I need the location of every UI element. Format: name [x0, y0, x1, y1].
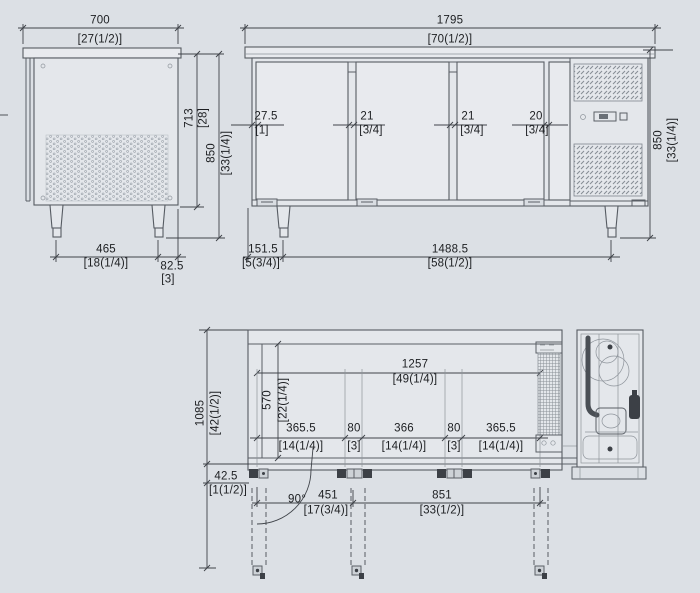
front-leg-offset-mm: 151.5 [248, 244, 278, 256]
side-worktop [23, 48, 181, 58]
side-dim-legs [50, 209, 186, 262]
plan-swing1-in: [17(3/4)] [304, 505, 349, 517]
plan-hinge-offset-in: [1(1/2)] [209, 485, 247, 497]
side-door-edge [26, 58, 30, 201]
front-door-1 [256, 62, 348, 200]
front-height-mm: 850 [653, 130, 665, 150]
plan-depth-in: [42(1/2)] [210, 391, 222, 436]
front-width-in: [70(1/2)] [428, 34, 473, 46]
front-leg-offset-in: [5(3/4)] [242, 258, 280, 270]
front-vent-grille-top [574, 64, 642, 101]
front-worktop [245, 47, 655, 58]
plan-machine-compartment [572, 330, 646, 479]
front-view [231, 24, 673, 262]
plan-hinge-offset-mm: 42.5 [214, 471, 237, 483]
side-dim-body-height [178, 51, 224, 210]
front-gap-mid1-in: [3/4] [359, 125, 382, 137]
front-vent-grille-bottom [574, 144, 642, 196]
plan-hinge-span-in: [49(1/4)] [393, 374, 438, 386]
plan-seg4-mm: 80 [447, 423, 460, 435]
front-height-in: [33(1/4)] [667, 118, 679, 163]
side-width-mm: 700 [90, 15, 110, 27]
plan-depth-mm: 1085 [195, 400, 207, 426]
front-gap-right-mm: 20 [529, 111, 542, 123]
plan-swing2-in: [33(1/2)] [420, 505, 465, 517]
refrigerator-dimension-drawing: 700 [27(1/2)] 713 [28] 850 [33(1/4)] 465… [0, 0, 700, 593]
plan-hinge-span-mm: 1257 [402, 359, 428, 371]
plan-seg5-mm: 365.5 [486, 423, 516, 435]
plan-swing1-mm: 451 [318, 490, 338, 502]
plan-interior-depth-in: [22(1/4)] [278, 378, 290, 423]
drawing-linework [0, 0, 700, 593]
side-legs [50, 205, 165, 237]
front-legs [277, 206, 618, 237]
front-gap-mid1-mm: 21 [360, 111, 373, 123]
plan-seg3-in: [14(1/4)] [382, 441, 427, 453]
plan-evaporator [536, 342, 577, 452]
front-gap-right-in: [3/4] [525, 125, 548, 137]
drier-cylinder [629, 395, 640, 419]
front-leg-span-in: [58(1/2)] [428, 258, 473, 270]
front-gap-left-in: [1] [255, 125, 268, 137]
side-leg-offset-mm: 82.5 [160, 261, 183, 273]
screw [608, 345, 613, 350]
front-leg-span-mm: 1488.5 [432, 244, 468, 256]
plan-compartment-base [572, 467, 646, 479]
front-gap-mid2-mm: 21 [461, 111, 474, 123]
side-body-height-mm: 713 [184, 108, 196, 128]
side-leg-span-in: [18(1/4)] [84, 258, 129, 270]
side-leg-offset-in: [3] [161, 274, 174, 286]
plan-seg1-in: [14(1/4)] [279, 441, 324, 453]
side-height-mm: 850 [206, 143, 218, 163]
front-gap-left-mm: 27.5 [254, 111, 277, 123]
front-gap-mid2-in: [3/4] [460, 125, 483, 137]
plan-seg2-in: [3] [347, 441, 360, 453]
plan-seg5-in: [14(1/4)] [479, 441, 524, 453]
plan-seg1-mm: 365.5 [286, 423, 316, 435]
side-height-in: [33(1/4)] [221, 131, 233, 176]
plan-seg3-mm: 366 [394, 423, 414, 435]
side-vent-perforation [46, 135, 168, 201]
plan-seg4-in: [3] [447, 441, 460, 453]
front-filler-panel [549, 62, 570, 200]
plan-seg2-mm: 80 [347, 423, 360, 435]
front-width-mm: 1795 [437, 15, 463, 27]
plan-interior-depth-mm: 570 [262, 390, 274, 410]
side-leg-span-mm: 465 [96, 244, 116, 256]
screw [608, 447, 613, 452]
side-width-in: [27(1/2)] [78, 34, 123, 46]
plan-dim-depth [199, 327, 251, 571]
side-view [0, 24, 225, 262]
side-body-height-in: [28] [198, 108, 210, 128]
plan-swing2-mm: 851 [432, 490, 452, 502]
